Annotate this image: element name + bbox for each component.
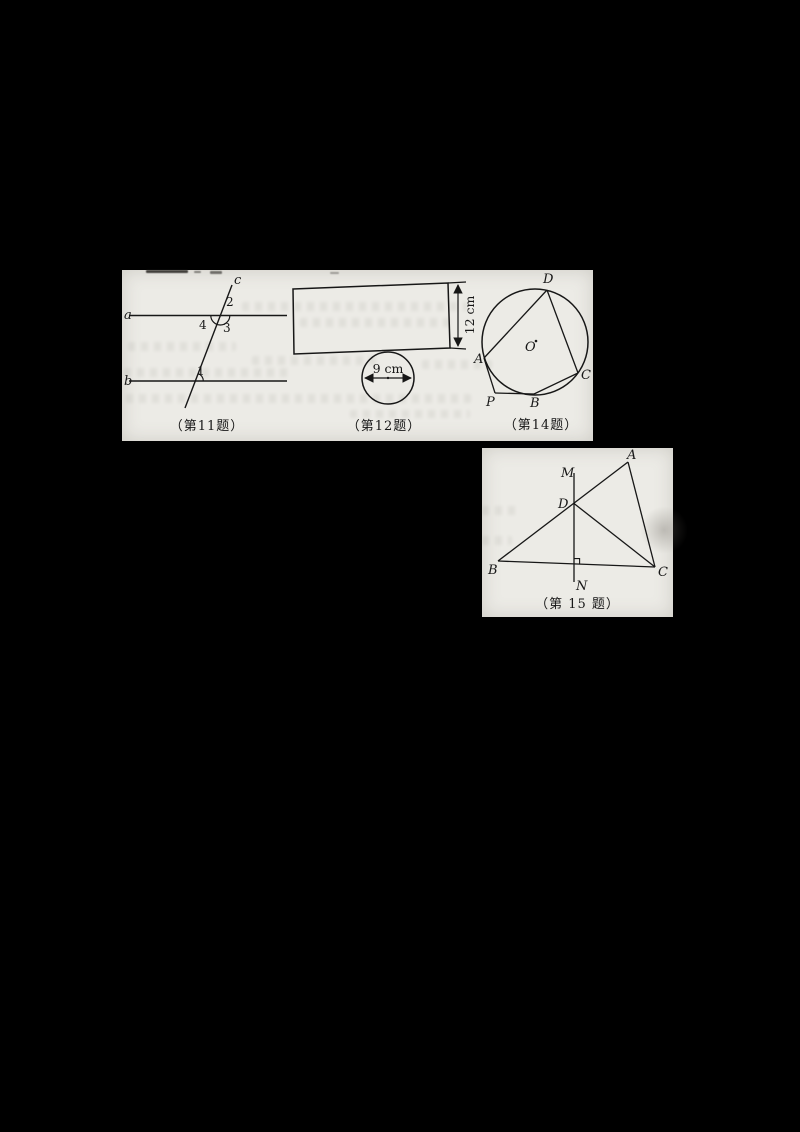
fig14-point-p-label: P [485, 395, 495, 410]
fig15-point-m-label: M [560, 466, 575, 481]
fig14-point-c-label: C [581, 368, 591, 383]
fig15-point-c-label: C [658, 565, 668, 580]
fig15-caption: （第 15 题） [497, 593, 658, 612]
fig15-point-n-label: N [575, 579, 588, 594]
fig14-caption: （第14题） [481, 414, 601, 433]
fig15-point-b-label: B [487, 563, 498, 578]
fig14-point-b-label: B [529, 396, 540, 411]
fig15-side-bc [498, 561, 655, 567]
scanned-patch-bottom: M A D B C N （第 15 题） [482, 448, 673, 617]
fig14-center-label: O [525, 340, 536, 355]
fig11-caption: （第11题） [147, 415, 267, 434]
fig14-chord-ad [484, 290, 547, 358]
fig12-caption: （第12题） [324, 415, 444, 434]
fig15-diagram: M A D B C N [482, 448, 673, 617]
fig15-point-a-label: A [626, 448, 636, 463]
fig14-segment-pb [495, 393, 534, 394]
fig15-point-d-label: D [557, 497, 569, 512]
fig15-segment-dc [574, 504, 655, 568]
fig14-point-d-label: D [542, 272, 554, 287]
fig14-chord-dc [547, 290, 578, 373]
fig14-point-a-label: A [473, 352, 483, 367]
fig15-right-angle-mark [574, 559, 580, 565]
fig15-side-ac [628, 462, 655, 567]
scanned-strip-top: a b c 2 4 3 1 12 cm 9 cm [122, 270, 593, 441]
